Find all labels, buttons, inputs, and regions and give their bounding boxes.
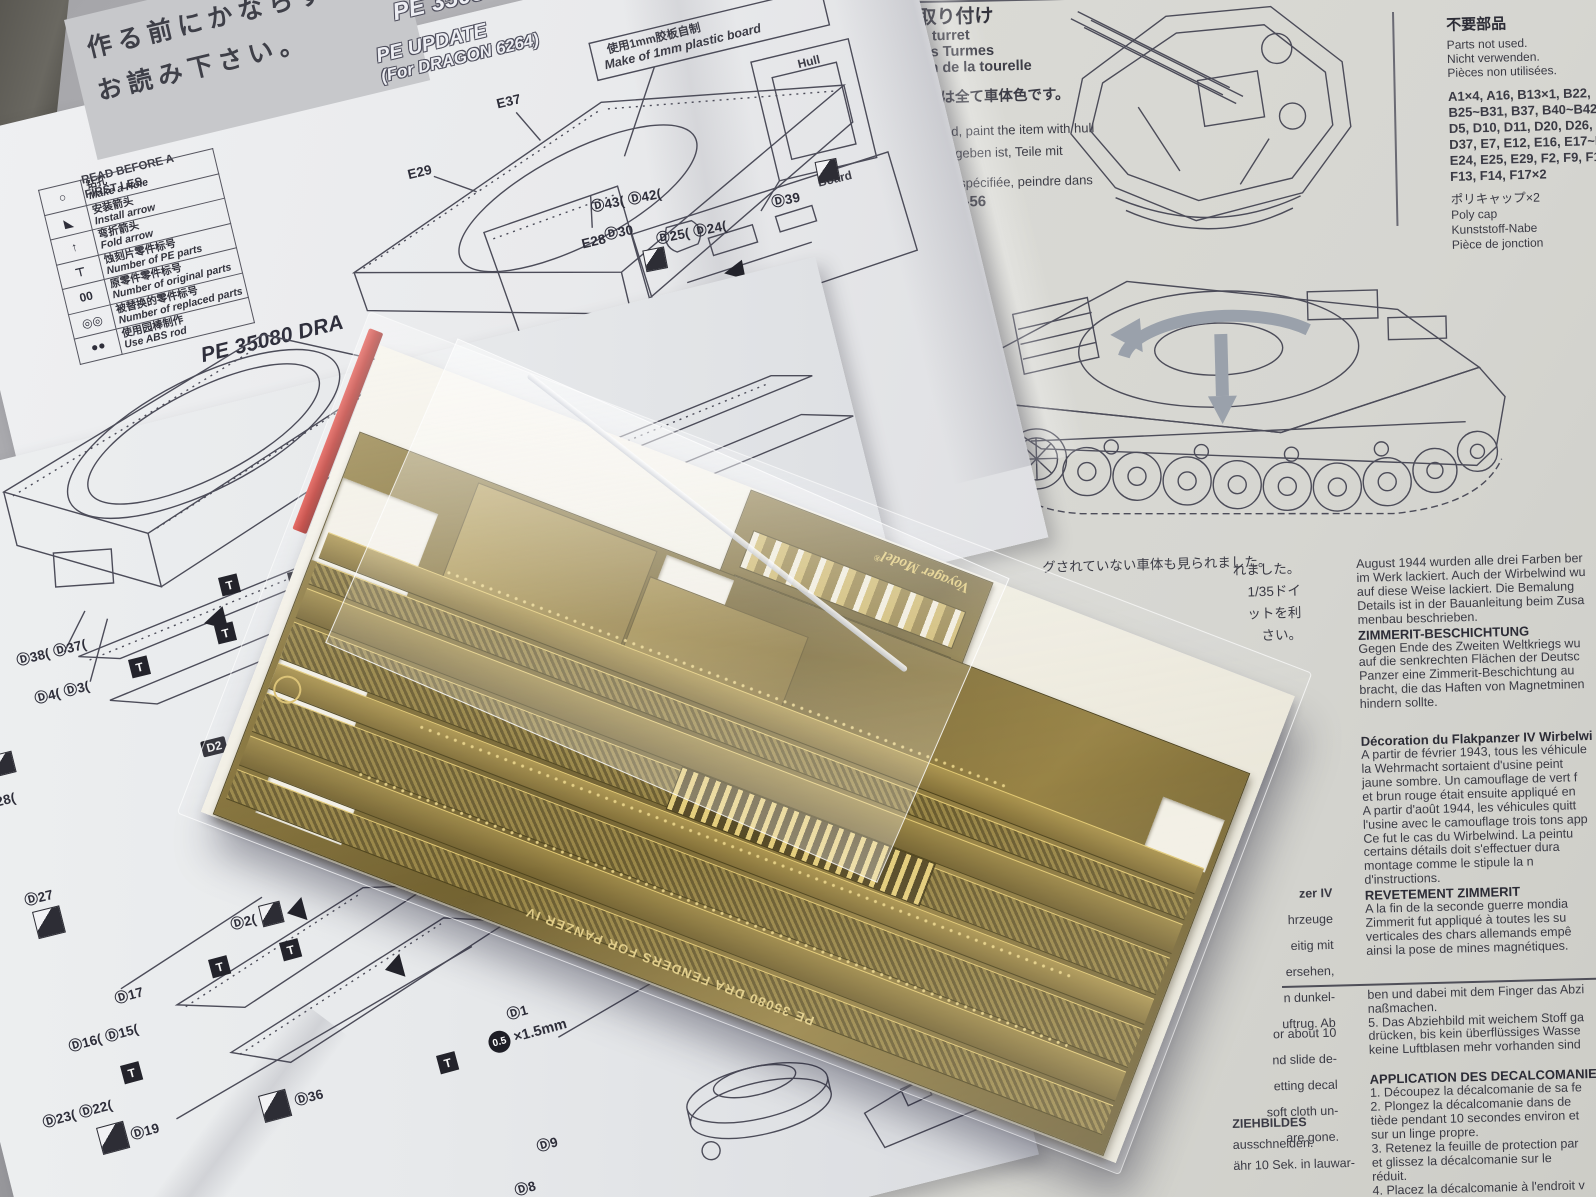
fragment-column-bottom: ZIEHBILDES ausschneiden. ähr 10 Sek. in … — [1232, 1110, 1384, 1177]
fragment-text: etting decal — [1249, 1072, 1338, 1100]
parts-not-used-block: 不要部品 Parts not used. Nicht verwenden. Pi… — [1446, 14, 1596, 298]
t-text: T — [224, 577, 235, 592]
fragment-column-jp: れました。 1/35ドイ ットを利 さい。 — [1226, 558, 1302, 648]
fragment-text: hrzeuge — [1253, 906, 1334, 934]
t-text: T — [214, 959, 225, 974]
t-text: T — [126, 1065, 137, 1080]
photo-model-kit-instructions-and-pe-fret: de commen du mo 15 砲塔の取り付け Attaching tur… — [0, 0, 1596, 1197]
fragment-text: れました。 — [1226, 558, 1301, 582]
fold-icon — [815, 158, 841, 184]
parts-not-used-jp: 不要部品 — [1446, 14, 1596, 33]
fragment-text: さい。 — [1228, 624, 1303, 648]
fragment-text: ersehen, — [1254, 958, 1335, 986]
t-text: T — [220, 625, 231, 640]
fragment-text: eitig mit — [1253, 932, 1334, 960]
t-text: T — [285, 942, 296, 957]
fold-icon — [642, 246, 668, 272]
fragment-text: 1/35ドイ — [1227, 580, 1302, 604]
t-text: T — [442, 1055, 453, 1070]
fragment-text: or about 10 — [1248, 1020, 1337, 1048]
fragment-text: zer IV — [1252, 880, 1333, 908]
fragment-text: n dunkel- — [1255, 984, 1336, 1012]
text-column-right: August 1944 wurden alle drei Farben ber … — [1356, 552, 1596, 1197]
parts-not-used-fr: Pièces non utilisées. — [1447, 62, 1596, 80]
fragment-column-1: zer IV hrzeuge eitig mit ersehen, n dunk… — [1252, 880, 1336, 1038]
t-text: T — [134, 659, 145, 674]
fragment-text: ットを利 — [1227, 602, 1302, 626]
fragment-text: nd slide de- — [1249, 1046, 1338, 1074]
fragment-text: ähr 10 Sek. in lauwar- — [1233, 1152, 1383, 1177]
